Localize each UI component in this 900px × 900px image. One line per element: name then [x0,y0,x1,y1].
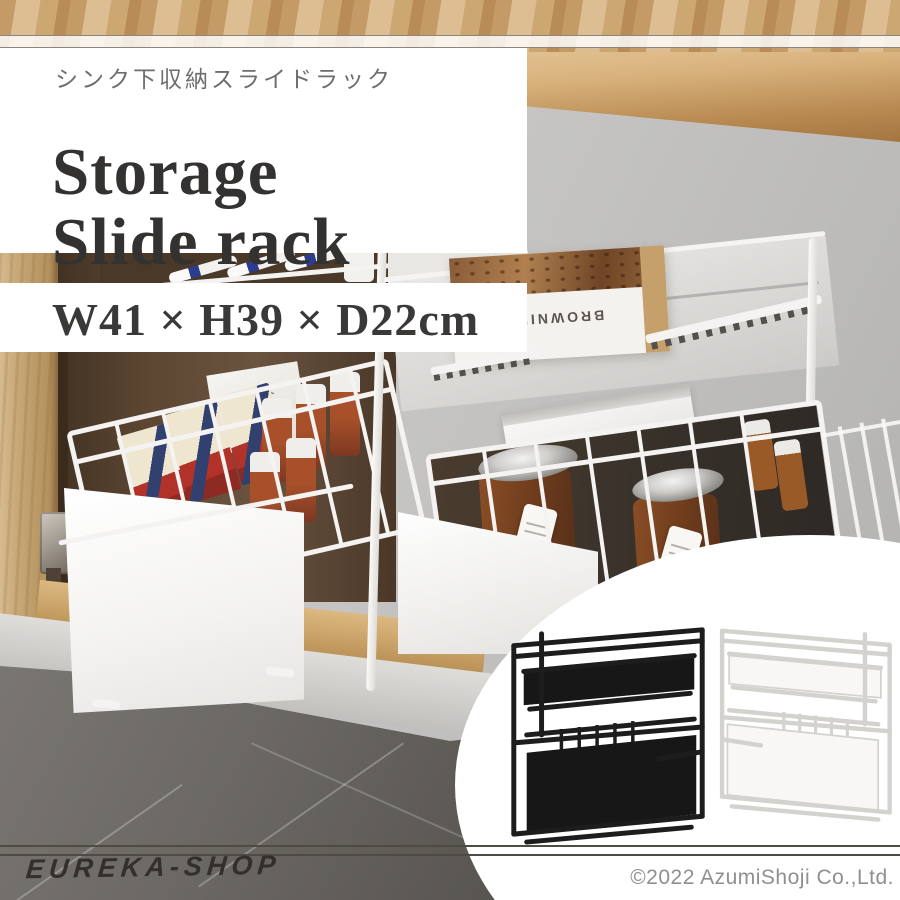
footer-rule-top [0,845,900,847]
copyright-text: ©2022 AzumiShoji Co.,Ltd. [630,866,894,890]
dimensions-text: W41 × H39 × D22cm [52,293,479,346]
title-panel: シンク下収納スライドラック Storage Slide rack [0,48,527,253]
product-banner: PIE MIX BROWNIE MIX [0,0,900,900]
white-rack-render [708,602,900,836]
page-title-line1: Storage [52,139,279,206]
page-title-line2: Slide rack [52,209,350,276]
drawer-front-panel-left [64,488,304,713]
subtitle-japanese: シンク下収納スライドラック [55,60,393,94]
dimensions-band: W41 × H39 × D22cm [0,283,527,352]
top-double-rule [0,35,900,48]
shop-name: EUREKA-SHOP [25,850,282,885]
black-rack-render [498,610,720,848]
